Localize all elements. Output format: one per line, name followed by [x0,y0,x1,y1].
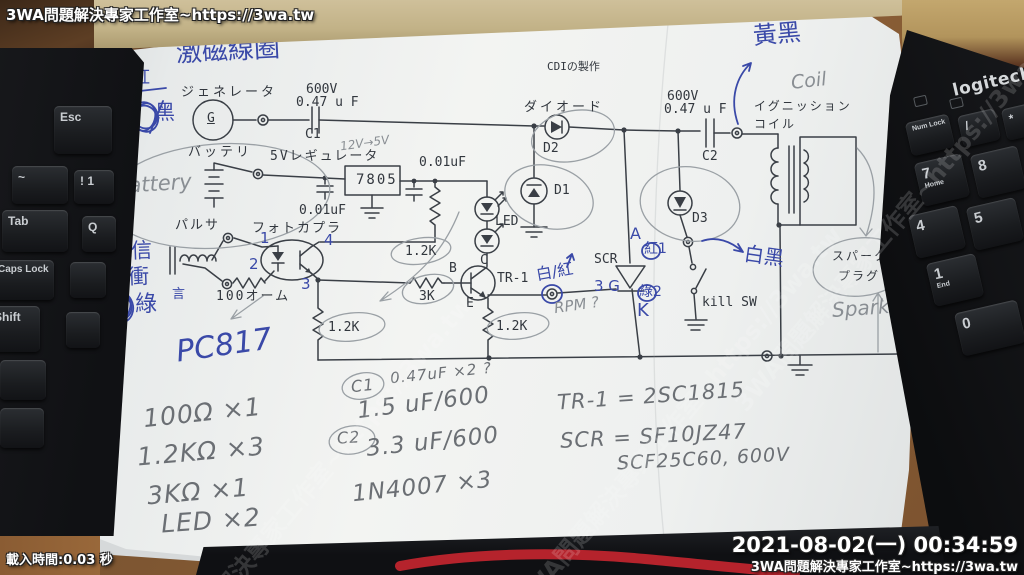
pen-white-black: 白黑 [743,243,786,269]
key-blank-3 [0,408,44,448]
pen-pin3: 3 [301,277,311,293]
key-1-label: 1 [932,265,944,283]
key-1-label: ! 1 [80,174,94,188]
blue-arrow-white-black [702,239,743,252]
d3-diode [668,131,693,247]
blue-arrow-yellow-black [734,63,751,124]
label-r12k-b: 1.2K [496,320,527,334]
timestamp-text: 2021-08-02(一) 00:34:59 [732,529,1018,559]
pencil-coil: Coil [790,68,828,94]
label-100ohm: 100オーム [216,290,290,304]
generator-g: G [207,112,215,126]
kill-switch-symbol [685,247,707,330]
label-c1: C1 [305,128,321,142]
key-caps-lock: Caps Lock [0,260,54,300]
pen-scr-3g: 3 G [594,279,620,295]
key-numlock-label: Num Lock [911,118,946,132]
schematic-paper: ジェネレータ G 600V 0.47 u F C1 CDIの製作 ダイオード D… [0,0,1024,575]
key-blank-2 [0,360,46,400]
label-cdi-title: CDIの製作 [547,61,600,73]
label-tr1: TR-1 [497,272,528,286]
label-ignition-2: コイル [754,118,796,131]
label-cap-out: 0.01uF [419,156,466,170]
key-5-label: 5 [972,209,984,227]
key-8: 8 [970,145,1024,199]
generator-symbol [193,100,268,140]
pen-pin4: 4 [324,233,334,249]
label-b: B [449,262,457,276]
label-c1-value: 0.47 u F [296,96,359,110]
label-c2: C2 [702,150,718,164]
label-regulator: 5Vレギュレータ [270,150,379,164]
pulser-coil-symbol [170,233,233,281]
numlock-indicator-icon [913,95,928,108]
pen-scr-red1: 紅1 [644,242,667,257]
key-w [70,262,106,298]
label-ignition-1: イグニッション [754,100,852,113]
watermark-top-left: 3WA問題解決專家工作室~https://3wa.tw [6,4,314,25]
key-blank-1 [66,312,100,348]
battery-symbol [205,163,263,207]
photo-of-cdi-schematic: ジェネレータ G 600V 0.47 u F C1 CDIの製作 ダイオード D… [0,0,1024,575]
label-d1: D1 [554,184,570,198]
pen-yellow-black: 黃黑 [752,20,802,49]
capslock-indicator-icon [949,97,964,110]
label-cap-in: 0.01uF [299,204,346,218]
label-battery: バッテリ [188,146,252,160]
label-d2: D2 [543,142,559,156]
key-0-label: 0 [961,314,973,332]
key-tilde: ~ [12,166,68,204]
watermark-bottom-right: 3WA問題解決專家工作室~https://3wa.tw [751,556,1018,575]
label-diode: ダイオード [524,101,604,115]
key-1: 1End [926,253,985,307]
label-c2-value: 0.47 u F [664,103,727,117]
d2-diode [534,115,624,139]
key-q-label: Q [88,220,97,234]
key-shift-label: Shift [0,310,21,324]
pen-pin2: 2 [249,257,259,273]
label-pulser: パルサ [175,219,220,233]
key-5: 5 [966,197,1024,251]
key-0: 0 [954,299,1024,356]
key-tab-label: Tab [8,214,28,228]
label-7805: 7805 [356,173,398,188]
key-q: Q [82,216,116,252]
label-r3k: 3K [419,290,435,304]
key-star-label: * [1008,111,1016,126]
key-tab: Tab [2,210,68,252]
key-shift: Shift [0,306,40,352]
key-tilde-label: ~ [18,170,25,184]
pen-green-note: 言 [172,288,185,302]
label-d3: D3 [692,212,708,226]
key-esc: Esc [54,106,112,154]
label-led: LED [495,215,518,229]
label-generator: ジェネレータ [181,86,277,100]
pen-pin1: 1 [260,231,270,247]
label-scr: SCR [594,253,617,267]
pen-scr-k: K [637,302,649,321]
key-1: ! 1 [74,170,114,204]
key-esc-label: Esc [60,110,81,124]
load-time-text: 載入時間:0.03 秒 [6,549,113,568]
key-8-label: 8 [976,157,988,175]
key-caps-label: Caps Lock [0,264,49,275]
pen-scr-a: A [630,226,641,243]
label-r12k-a: 1.2K [405,245,436,259]
pen-scr-green2: 綠2 [639,285,662,300]
pen-black: 黑 [155,102,175,123]
label-c: C [480,254,488,268]
label-r12k-c: 1.2K [328,321,359,335]
pen-green: 綠 [135,293,157,316]
